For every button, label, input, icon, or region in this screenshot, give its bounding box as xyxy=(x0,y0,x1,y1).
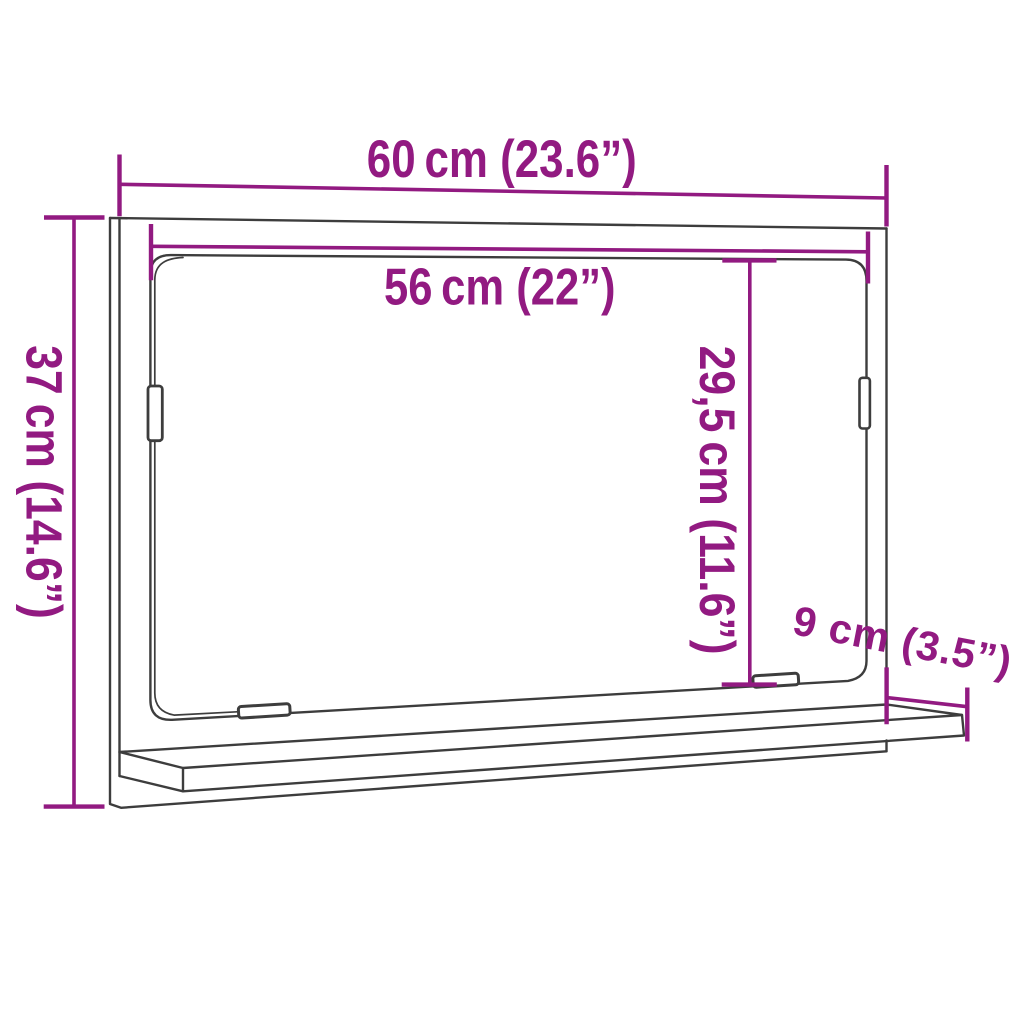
svg-text:56 cm (22”): 56 cm (22”) xyxy=(384,259,616,317)
svg-text:37 cm (14.6”): 37 cm (14.6”) xyxy=(16,345,73,619)
svg-text:60 cm (23.6”): 60 cm (23.6”) xyxy=(367,130,637,189)
svg-text:29,5 cm (11.6”): 29,5 cm (11.6”) xyxy=(689,346,745,655)
